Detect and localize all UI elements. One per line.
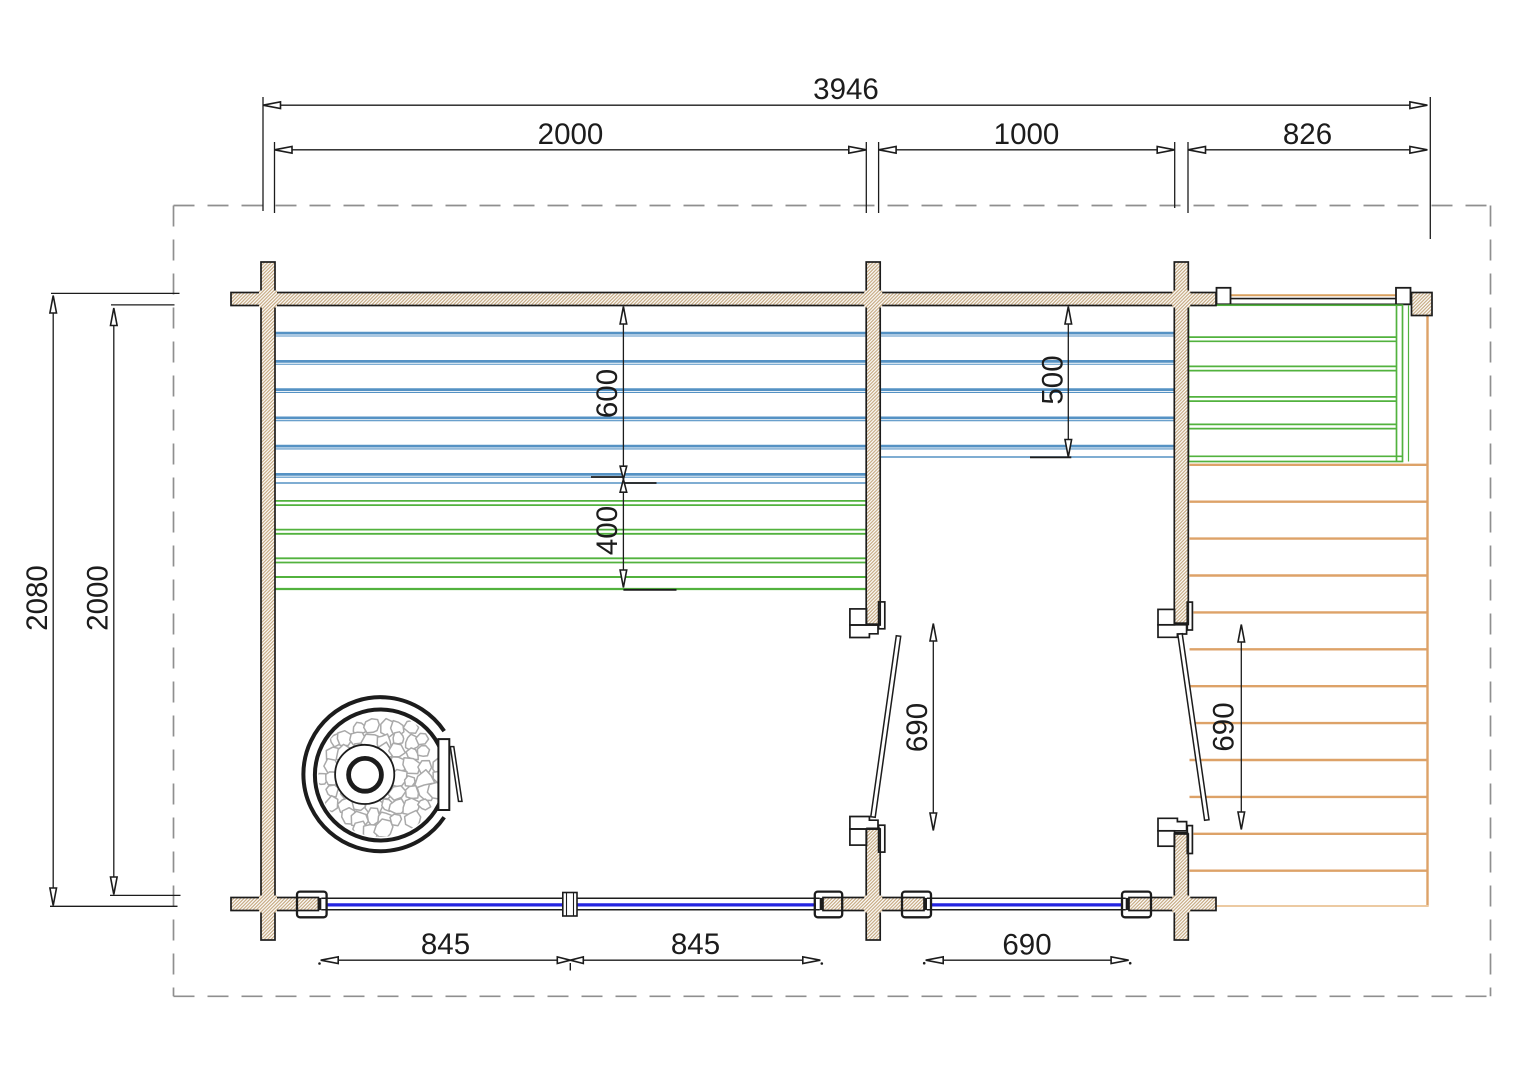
svg-text:845: 845 bbox=[671, 928, 720, 961]
svg-text:500: 500 bbox=[1037, 355, 1070, 404]
svg-text:3946: 3946 bbox=[813, 73, 879, 106]
svg-text:690: 690 bbox=[1208, 702, 1241, 751]
svg-text:826: 826 bbox=[1283, 118, 1332, 151]
svg-text:2000: 2000 bbox=[538, 118, 604, 151]
svg-text:845: 845 bbox=[421, 928, 470, 961]
svg-text:2000: 2000 bbox=[82, 565, 115, 631]
svg-text:690: 690 bbox=[901, 703, 934, 752]
svg-text:600: 600 bbox=[591, 369, 624, 418]
svg-text:2080: 2080 bbox=[21, 565, 54, 631]
svg-text:690: 690 bbox=[1002, 929, 1051, 962]
svg-text:400: 400 bbox=[591, 506, 624, 555]
svg-text:1000: 1000 bbox=[994, 118, 1060, 151]
